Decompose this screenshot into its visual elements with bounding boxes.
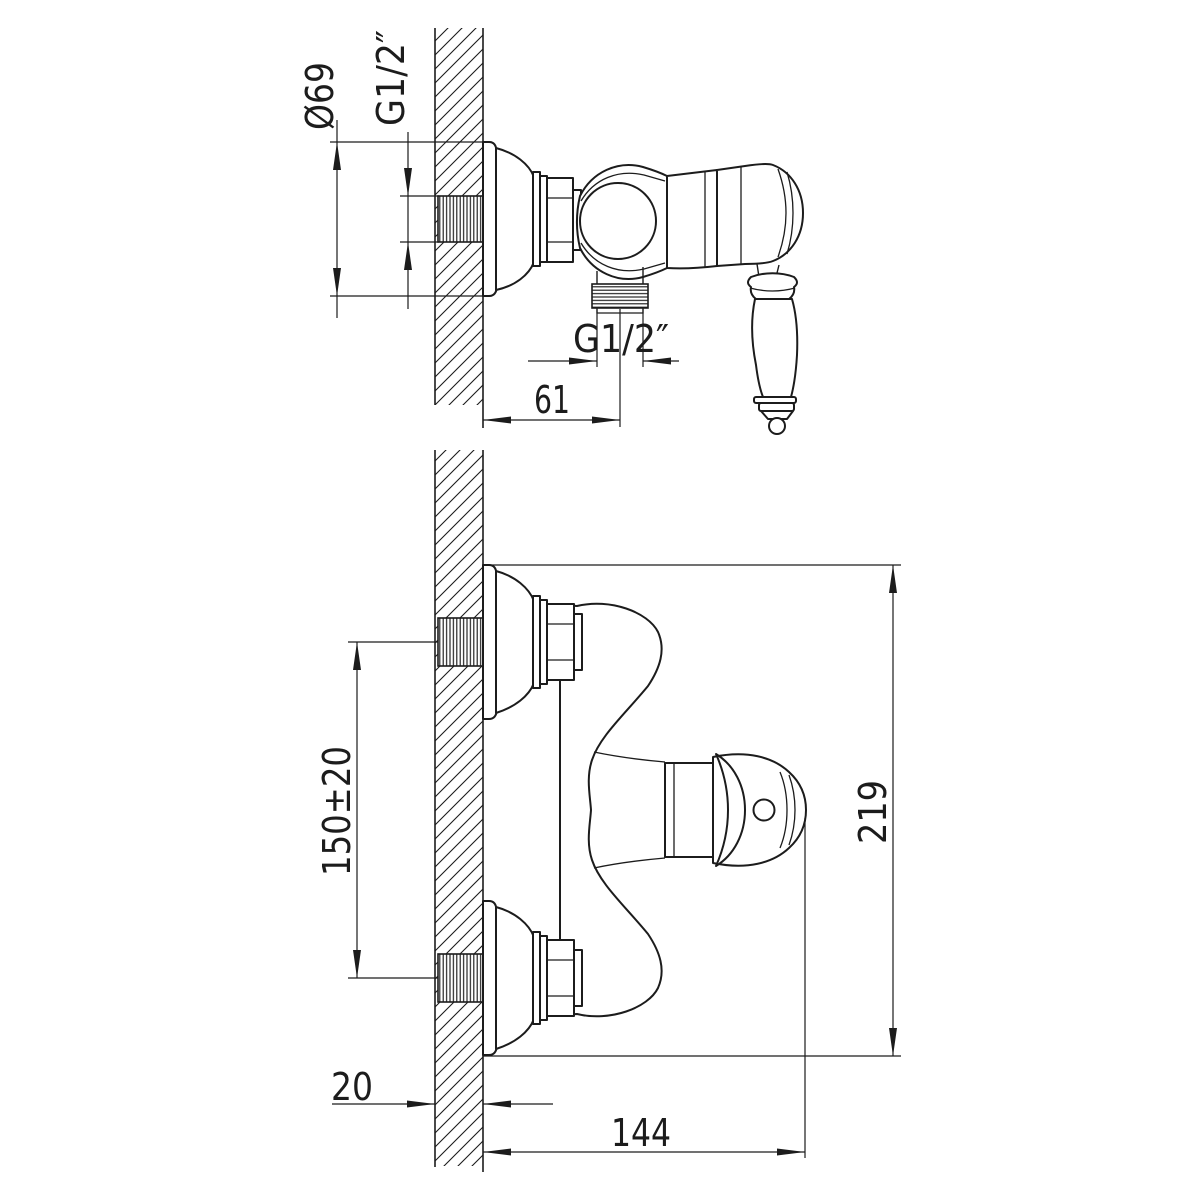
dim-label-wall-thread: G1/2″ <box>369 30 413 126</box>
hex-nut-side <box>547 178 573 262</box>
side-view: Ø69 G1/2″ G1/2″ 61 <box>298 28 803 434</box>
inlet-thread-bottom <box>438 954 483 1002</box>
handle-front <box>665 754 806 866</box>
inlet-thread-top <box>438 618 483 666</box>
cartridge-side <box>667 170 717 268</box>
lever-end-ball <box>769 418 785 434</box>
hex-nut <box>547 940 574 1016</box>
wall-section-front <box>435 450 483 1172</box>
dim-label-wall-thickness: 20 <box>331 1065 373 1109</box>
ball-joint <box>580 183 656 259</box>
wall-hatching <box>435 450 483 1166</box>
dim-label-body-depth: 144 <box>611 1111 671 1155</box>
wall-thread-side <box>438 196 483 242</box>
lever-handle-side <box>748 264 797 434</box>
valve-body-side <box>577 165 667 279</box>
dim-label-inlet-spacing: 150±20 <box>315 746 359 876</box>
escutcheon-side <box>483 142 581 296</box>
dim-label-escutcheon-diameter: Ø69 <box>298 62 342 130</box>
cartridge-front <box>665 763 713 857</box>
dim-label-outlet-thread: G1/2″ <box>573 317 669 361</box>
dim-label-overall-height: 219 <box>851 780 895 844</box>
lever-end-circle <box>754 800 775 821</box>
dim-label-outlet-offset: 61 <box>534 378 570 422</box>
hex-nut <box>547 604 574 680</box>
technical-drawing-canvas: Ø69 G1/2″ G1/2″ 61 <box>0 0 1200 1200</box>
handle-cap-side <box>717 164 803 266</box>
outlet-thread <box>592 284 648 308</box>
front-view: 150±20 219 20 144 <box>315 450 901 1172</box>
